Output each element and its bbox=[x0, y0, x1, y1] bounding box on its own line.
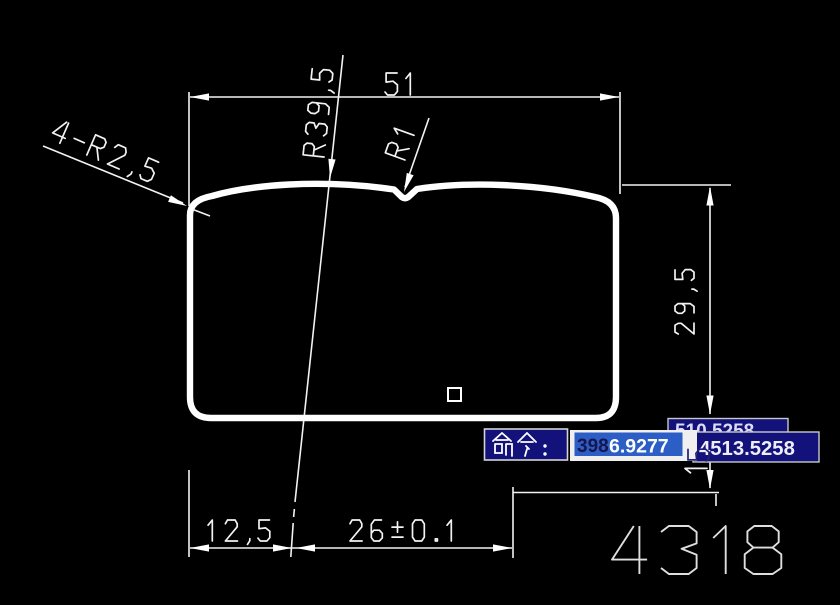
svg-text:6.9277: 6.9277 bbox=[609, 436, 669, 458]
svg-text:398: 398 bbox=[577, 436, 609, 457]
svg-text:4513.5258: 4513.5258 bbox=[699, 438, 795, 460]
